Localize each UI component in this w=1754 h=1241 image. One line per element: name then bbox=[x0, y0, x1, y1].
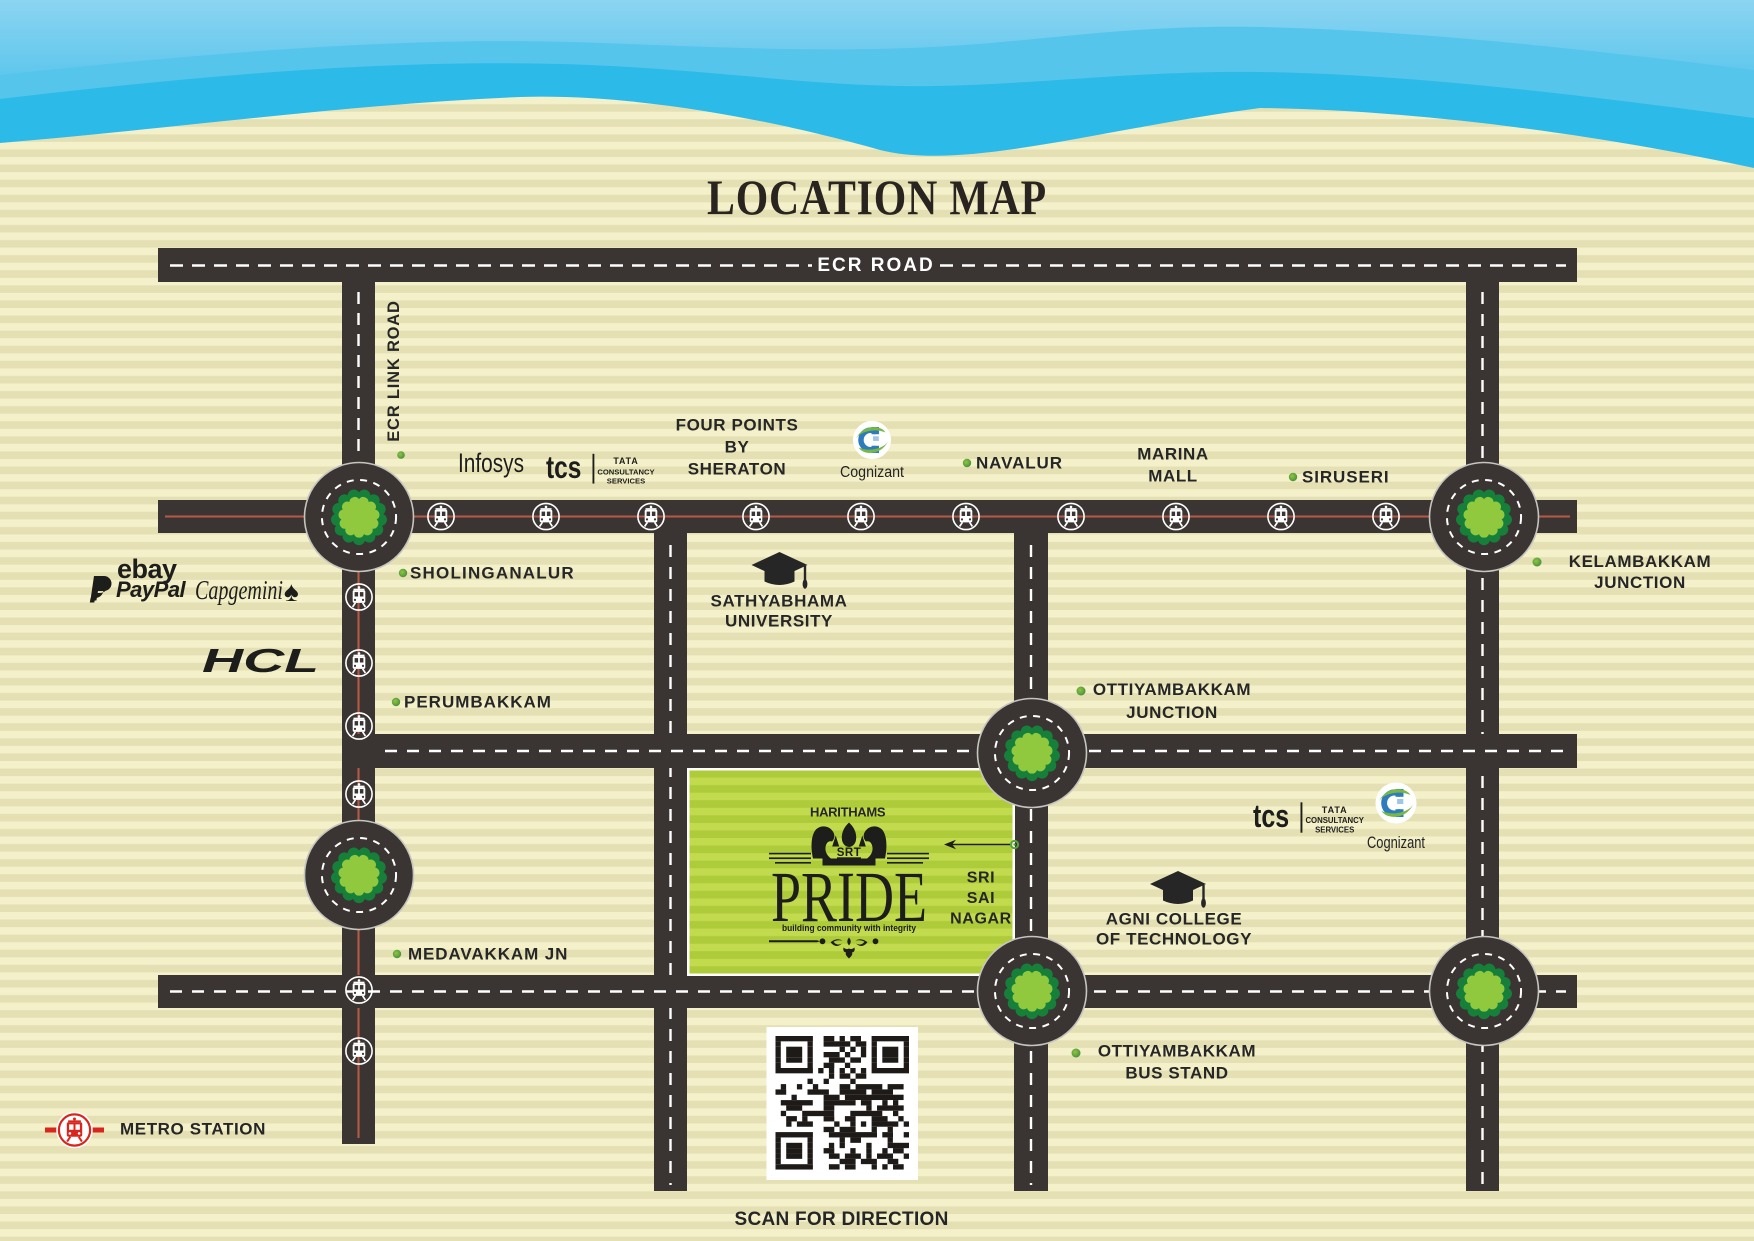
svg-text:Capgemini: Capgemini bbox=[195, 575, 283, 605]
svg-text:SRI: SRI bbox=[967, 870, 995, 887]
svg-text:CONSULTANCY: CONSULTANCY bbox=[597, 467, 654, 476]
svg-text:HCL: HCL bbox=[202, 642, 319, 679]
svg-text:TATA: TATA bbox=[1322, 805, 1348, 815]
svg-text:FOUR POINTS: FOUR POINTS bbox=[676, 415, 799, 434]
svg-text:MALL: MALL bbox=[1148, 466, 1198, 485]
svg-text:OTTIYAMBAKKAM: OTTIYAMBAKKAM bbox=[1093, 680, 1251, 699]
svg-text:SIRUSERI: SIRUSERI bbox=[1302, 467, 1390, 486]
svg-text:SERVICES: SERVICES bbox=[1315, 826, 1354, 835]
svg-text:SHERATON: SHERATON bbox=[688, 459, 787, 478]
svg-text:AGNI COLLEGE: AGNI COLLEGE bbox=[1106, 909, 1243, 928]
svg-text:CONSULTANCY: CONSULTANCY bbox=[1305, 816, 1364, 825]
svg-text:ECR ROAD: ECR ROAD bbox=[817, 255, 934, 276]
svg-text:UNIVERSITY: UNIVERSITY bbox=[725, 611, 833, 630]
svg-text:OTTIYAMBAKKAM: OTTIYAMBAKKAM bbox=[1098, 1041, 1256, 1060]
svg-text:KELAMBAKKAM: KELAMBAKKAM bbox=[1569, 552, 1712, 571]
svg-text:OF TECHNOLOGY: OF TECHNOLOGY bbox=[1096, 929, 1252, 948]
svg-text:PERUMBAKKAM: PERUMBAKKAM bbox=[404, 692, 552, 711]
svg-text:Infosys: Infosys bbox=[458, 448, 524, 478]
svg-text:tcs: tcs bbox=[1253, 798, 1289, 834]
svg-text:LOCATION MAP: LOCATION MAP bbox=[707, 169, 1047, 225]
svg-text:SHOLINGANALUR: SHOLINGANALUR bbox=[410, 563, 575, 582]
svg-text:METRO STATION: METRO STATION bbox=[120, 1119, 266, 1138]
svg-text:NAVALUR: NAVALUR bbox=[976, 453, 1063, 472]
svg-text:♠: ♠ bbox=[284, 576, 299, 607]
svg-text:SAI: SAI bbox=[967, 890, 995, 907]
svg-text:TATA: TATA bbox=[613, 456, 638, 466]
svg-text:Cognizant: Cognizant bbox=[1367, 833, 1425, 852]
svg-text:MARINA: MARINA bbox=[1137, 444, 1209, 463]
svg-text:PayPal: PayPal bbox=[116, 577, 187, 602]
svg-text:BY: BY bbox=[725, 437, 750, 456]
svg-text:Cognizant: Cognizant bbox=[840, 464, 905, 481]
svg-text:BUS STAND: BUS STAND bbox=[1125, 1063, 1228, 1082]
svg-text:SCAN FOR DIRECTION: SCAN FOR DIRECTION bbox=[735, 1209, 950, 1230]
svg-text:tcs: tcs bbox=[546, 449, 581, 485]
svg-text:SATHYABHAMA: SATHYABHAMA bbox=[711, 591, 848, 610]
svg-text:SERVICES: SERVICES bbox=[607, 477, 645, 486]
svg-text:HARITHAMS: HARITHAMS bbox=[810, 804, 888, 819]
svg-text:MEDAVAKKAM JN: MEDAVAKKAM JN bbox=[408, 944, 568, 963]
svg-text:building community with integr: building community with integrity bbox=[782, 923, 917, 934]
svg-text:JUNCTION: JUNCTION bbox=[1594, 573, 1686, 592]
svg-text:NAGAR: NAGAR bbox=[950, 911, 1012, 928]
svg-text:ECR LINK ROAD: ECR LINK ROAD bbox=[385, 300, 403, 441]
svg-text:JUNCTION: JUNCTION bbox=[1126, 703, 1218, 722]
